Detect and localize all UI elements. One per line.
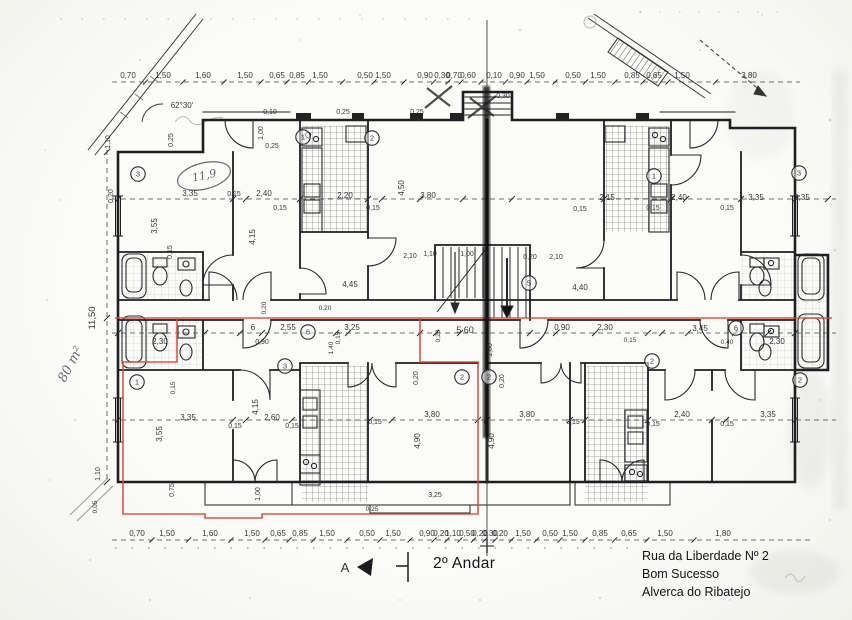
svg-text:0,25: 0,25 — [265, 143, 279, 150]
svg-text:1,50: 1,50 — [155, 71, 171, 80]
svg-text:3,80: 3,80 — [420, 191, 436, 200]
svg-text:1,10: 1,10 — [423, 251, 437, 258]
svg-text:4,90: 4,90 — [487, 433, 496, 449]
svg-text:2,20: 2,20 — [337, 191, 353, 200]
svg-text:0,20: 0,20 — [499, 374, 506, 388]
svg-text:0,15: 0,15 — [227, 191, 241, 198]
svg-text:3,35: 3,35 — [182, 189, 198, 198]
svg-text:2,30: 2,30 — [152, 337, 168, 346]
fixtures — [122, 126, 824, 485]
svg-text:3,25: 3,25 — [344, 323, 360, 332]
svg-text:2: 2 — [460, 373, 464, 382]
svg-text:1,40: 1,40 — [328, 341, 335, 354]
windows — [114, 196, 800, 442]
svg-text:0,15: 0,15 — [170, 381, 177, 394]
svg-text:0,15: 0,15 — [335, 331, 342, 344]
svg-text:2: 2 — [798, 376, 802, 385]
svg-text:2,40: 2,40 — [256, 189, 272, 198]
svg-text:1,00: 1,00 — [255, 487, 262, 501]
svg-text:0,10: 0,10 — [263, 109, 277, 116]
svg-text:3,55: 3,55 — [150, 218, 159, 234]
svg-text:0,65: 0,65 — [270, 529, 286, 538]
bathtub-icon — [122, 254, 824, 368]
svg-text:0,70: 0,70 — [129, 529, 145, 538]
svg-text:0,15: 0,15 — [720, 205, 734, 212]
svg-text:0,90: 0,90 — [255, 339, 269, 346]
stair-arrow-icon — [501, 306, 513, 318]
svg-text:0,65: 0,65 — [646, 71, 662, 80]
svg-text:0,50: 0,50 — [565, 71, 581, 80]
svg-text:4,50: 4,50 — [397, 180, 406, 196]
svg-text:1,00: 1,00 — [258, 126, 265, 140]
svg-text:1,10: 1,10 — [105, 135, 112, 149]
svg-text:1,50: 1,50 — [312, 71, 328, 80]
svg-text:0,50: 0,50 — [542, 529, 558, 538]
walls — [114, 92, 829, 513]
svg-text:3,80: 3,80 — [741, 71, 757, 80]
svg-text:2: 2 — [370, 134, 374, 143]
svg-text:1,50: 1,50 — [515, 529, 531, 538]
svg-text:0,90: 0,90 — [554, 323, 570, 332]
svg-text:0,20: 0,20 — [261, 301, 268, 314]
svg-text:2,10: 2,10 — [549, 254, 563, 261]
svg-text:2,10: 2,10 — [403, 253, 417, 260]
svg-text:1,50: 1,50 — [657, 529, 673, 538]
tiled-floors — [120, 126, 828, 502]
svg-text:0,20: 0,20 — [435, 329, 442, 342]
svg-text:1: 1 — [652, 172, 656, 181]
svg-text:0,15: 0,15 — [285, 423, 299, 430]
svg-text:2,40: 2,40 — [674, 410, 690, 419]
svg-text:3: 3 — [797, 169, 801, 178]
svg-text:0,15: 0,15 — [624, 337, 637, 344]
svg-text:0,20: 0,20 — [523, 254, 537, 261]
floor-title: 2º Andar — [433, 555, 495, 573]
svg-text:A: A — [341, 560, 350, 575]
svg-text:1,00: 1,00 — [460, 251, 474, 258]
svg-text:0,15: 0,15 — [368, 419, 382, 426]
svg-text:4,90: 4,90 — [413, 433, 422, 449]
svg-text:0,20: 0,20 — [319, 305, 332, 312]
svg-text:6: 6 — [734, 324, 738, 333]
svg-text:0,20: 0,20 — [492, 529, 508, 538]
svg-text:0,15: 0,15 — [566, 419, 580, 426]
svg-text:0,85: 0,85 — [289, 71, 305, 80]
svg-text:3,25: 3,25 — [428, 492, 442, 499]
svg-text:0,20: 0,20 — [413, 371, 420, 385]
svg-text:0,70: 0,70 — [120, 71, 136, 80]
svg-text:1,10: 1,10 — [95, 467, 102, 481]
svg-text:5 60: 5 60 — [456, 325, 474, 335]
svg-text:3,35: 3,35 — [748, 193, 764, 202]
address-line-street: Rua da Liberdade Nº 2 — [642, 548, 769, 566]
svg-text:1,50: 1,50 — [244, 529, 260, 538]
svg-text:3,35: 3,35 — [794, 193, 810, 202]
svg-text:0,15: 0,15 — [646, 205, 660, 212]
svg-text:0,25: 0,25 — [366, 506, 379, 513]
svg-text:3,45: 3,45 — [692, 324, 708, 333]
svg-text:0,15: 0,15 — [646, 421, 660, 428]
stair-arrow-icon — [451, 303, 459, 313]
staircase — [437, 247, 526, 318]
svg-text:0,05: 0,05 — [92, 500, 99, 513]
address-block: Rua da Liberdade Nº 2 Bom Sucesso Alverc… — [642, 548, 769, 601]
svg-text:6: 6 — [251, 323, 256, 332]
svg-text:80 m²: 80 m² — [55, 344, 86, 385]
sink-icon — [178, 258, 779, 338]
svg-text:11,50: 11,50 — [87, 306, 98, 329]
svg-text:0,30: 0,30 — [496, 93, 510, 100]
svg-text:11,9: 11,9 — [191, 167, 218, 185]
svg-text:4,40: 4,40 — [572, 283, 588, 292]
svg-text:2: 2 — [487, 373, 491, 382]
angle-arc — [142, 104, 163, 122]
svg-text:1,50: 1,50 — [529, 71, 545, 80]
svg-text:6: 6 — [306, 328, 310, 337]
svg-text:2: 2 — [650, 357, 654, 366]
svg-text:1,50: 1,50 — [674, 71, 690, 80]
svg-text:0,40: 0,40 — [721, 339, 734, 346]
svg-text:1,50: 1,50 — [590, 71, 606, 80]
svg-text:0,25: 0,25 — [168, 133, 175, 147]
svg-text:1,50: 1,50 — [562, 529, 578, 538]
svg-text:3,35: 3,35 — [180, 413, 196, 422]
scanned-floor-plan-page: 0,701,501,601,500,650,851,500,501,500,90… — [0, 0, 852, 620]
svg-text:0,15: 0,15 — [228, 423, 242, 430]
svg-text:2,15: 2,15 — [599, 193, 615, 202]
svg-text:1: 1 — [301, 133, 305, 142]
svg-text:1,50: 1,50 — [385, 529, 401, 538]
address-line-locality: Bom Sucesso — [642, 566, 769, 584]
svg-text:0,85: 0,85 — [592, 529, 608, 538]
section-marker — [357, 552, 408, 582]
svg-text:4,15: 4,15 — [251, 399, 260, 415]
svg-text:0,85: 0,85 — [624, 71, 640, 80]
svg-text:0,60: 0,60 — [460, 71, 476, 80]
svg-text:1,50: 1,50 — [237, 71, 253, 80]
svg-text:1,60: 1,60 — [195, 71, 211, 80]
svg-text:0,25: 0,25 — [410, 109, 424, 116]
address-line-town: Alverca do Ribatejo — [642, 584, 769, 602]
svg-text:0,20: 0,20 — [108, 189, 115, 203]
svg-text:3,55: 3,55 — [155, 426, 164, 442]
svg-text:0,90: 0,90 — [417, 71, 433, 80]
svg-text:3,35: 3,35 — [760, 410, 776, 419]
svg-text:1,60: 1,60 — [202, 529, 218, 538]
svg-text:0,25: 0,25 — [336, 109, 350, 116]
svg-text:2,60: 2,60 — [264, 413, 280, 422]
svg-text:2,40: 2,40 — [671, 193, 687, 202]
svg-text:1,60: 1,60 — [487, 343, 494, 357]
svg-text:0,50: 0,50 — [359, 529, 375, 538]
svg-text:0,85: 0,85 — [292, 529, 308, 538]
svg-text:1,50: 1,50 — [319, 529, 335, 538]
svg-text:3: 3 — [136, 170, 140, 179]
svg-text:0,90: 0,90 — [509, 71, 525, 80]
svg-text:0,65: 0,65 — [269, 71, 285, 80]
svg-text:0,15: 0,15 — [573, 206, 587, 213]
dimension-lines — [104, 82, 836, 540]
svg-text:2,30: 2,30 — [597, 323, 613, 332]
svg-text:0,75: 0,75 — [169, 483, 176, 497]
svg-text:4,45: 4,45 — [342, 280, 358, 289]
svg-text:5: 5 — [527, 279, 531, 288]
svg-text:4,15: 4,15 — [248, 229, 257, 245]
svg-text:0,10: 0,10 — [486, 71, 502, 80]
svg-text:2,30: 2,30 — [769, 337, 785, 346]
svg-text:62°30': 62°30' — [171, 101, 194, 110]
svg-text:3,80: 3,80 — [424, 410, 440, 419]
svg-text:1,50: 1,50 — [159, 529, 175, 538]
svg-text:1,80: 1,80 — [715, 529, 731, 538]
svg-text:1: 1 — [135, 378, 139, 387]
svg-text:1,50: 1,50 — [375, 71, 391, 80]
floor-plan-drawing: 0,701,501,601,500,650,851,500,501,500,90… — [0, 0, 852, 620]
svg-text:3: 3 — [283, 362, 287, 371]
svg-text:0,15: 0,15 — [366, 205, 380, 212]
svg-text:0,15: 0,15 — [720, 421, 734, 428]
svg-text:0,65: 0,65 — [621, 529, 637, 538]
svg-text:2,55: 2,55 — [280, 323, 296, 332]
svg-text:3,80: 3,80 — [519, 410, 535, 419]
svg-text:0,50: 0,50 — [357, 71, 373, 80]
svg-text:0,15: 0,15 — [167, 245, 174, 259]
svg-text:0,15: 0,15 — [273, 205, 287, 212]
